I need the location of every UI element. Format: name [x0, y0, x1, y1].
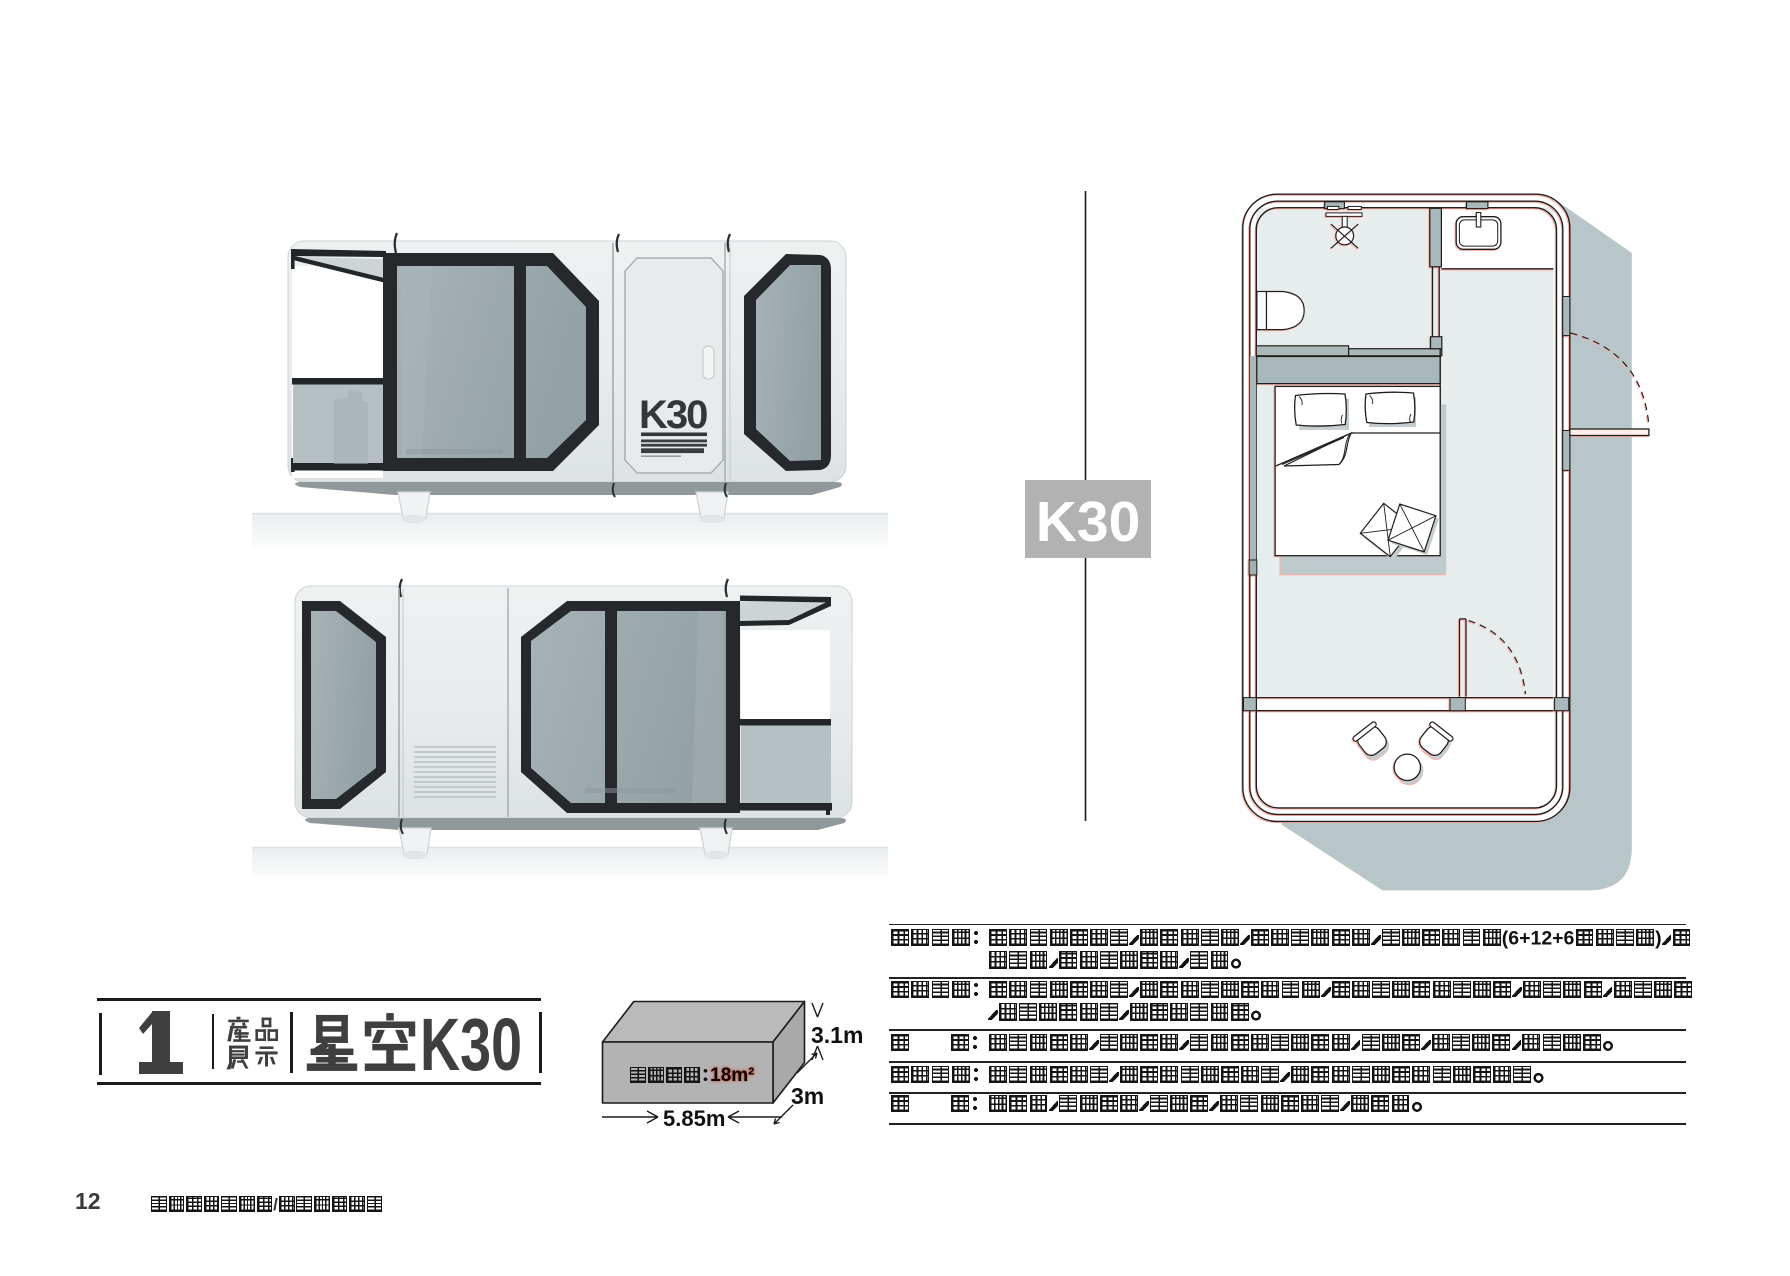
svg-text:K30: K30: [639, 393, 707, 437]
svg-text:K30: K30: [420, 1003, 522, 1086]
svg-text:K30: K30: [1036, 490, 1141, 554]
